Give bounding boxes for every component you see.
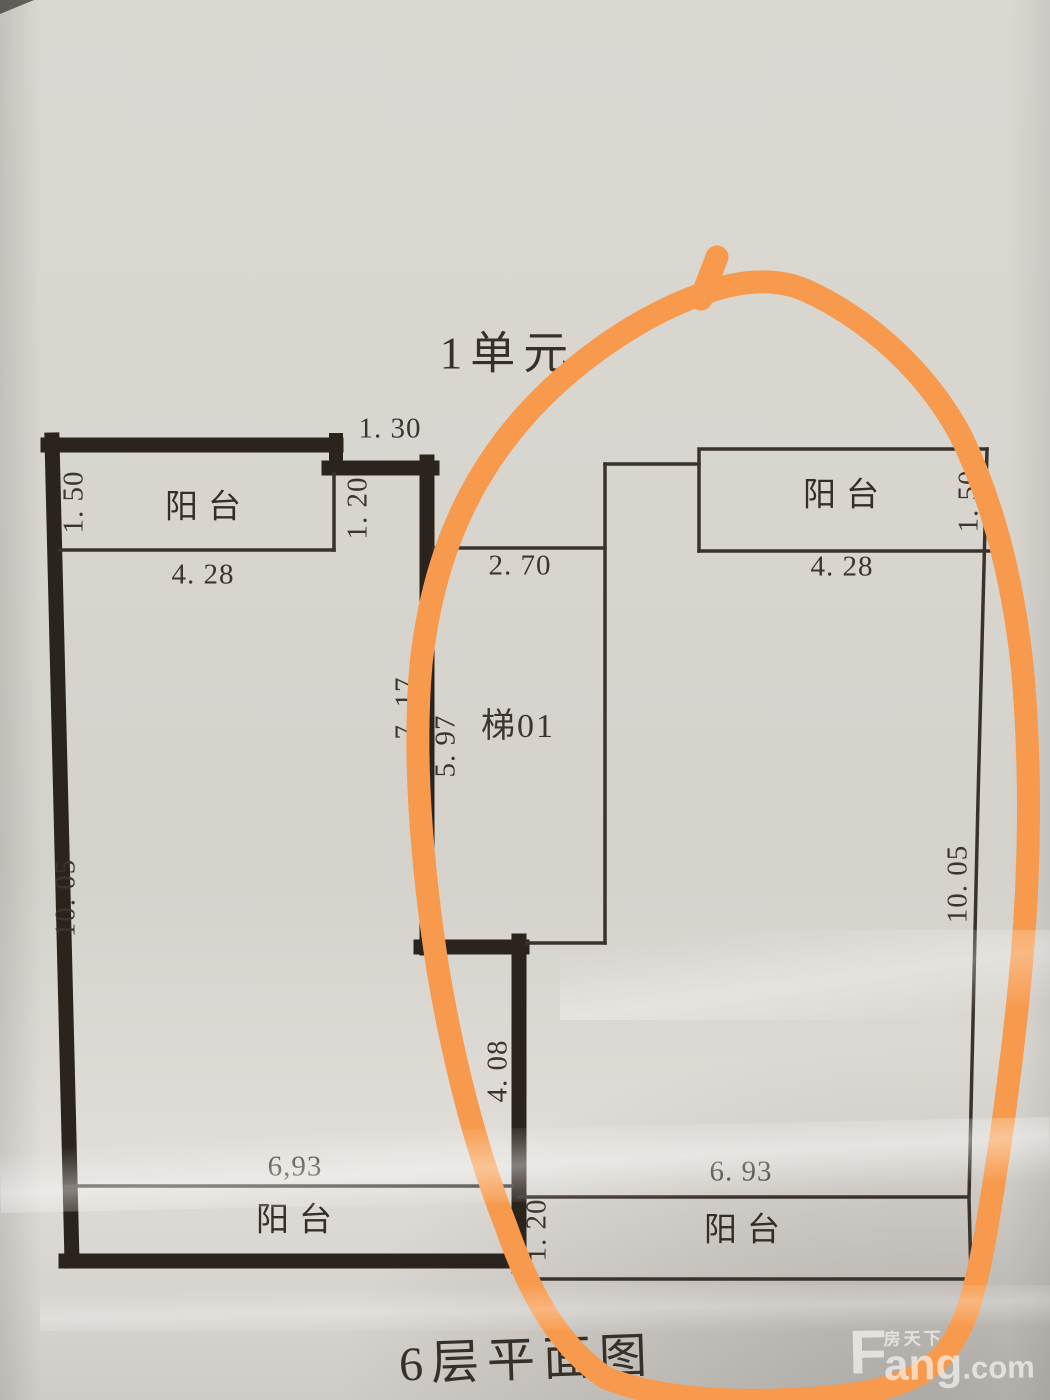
- floorplan-photo: 1单元 1. 30 阳台 1. 50 4. 28 1. 20 2. 70 阳台 …: [0, 0, 1050, 1400]
- fang-watermark: F 房天下 ang.com: [849, 1324, 1035, 1384]
- watermark-ang: ang: [884, 1340, 963, 1390]
- watermark-tld: .com: [962, 1349, 1035, 1385]
- marker-ellipse-path: [418, 282, 1029, 1400]
- marker-ellipse-annotation: [0, 0, 1050, 1400]
- watermark-f: F: [849, 1327, 888, 1380]
- marker-tail-stroke: [701, 257, 717, 299]
